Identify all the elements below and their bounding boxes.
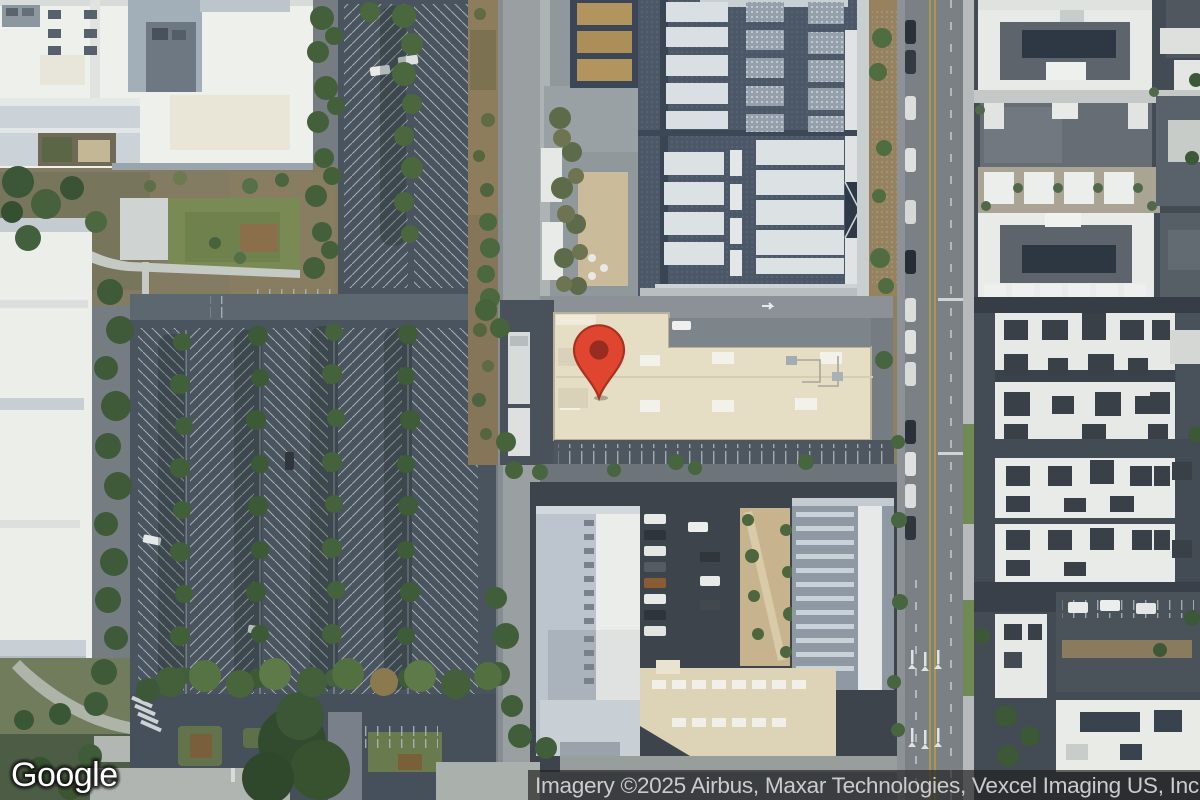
svg-text:Google: Google: [11, 756, 118, 794]
svg-text:Imagery ©2025 Airbus, Maxar Te: Imagery ©2025 Airbus, Maxar Technologies…: [535, 773, 1200, 798]
